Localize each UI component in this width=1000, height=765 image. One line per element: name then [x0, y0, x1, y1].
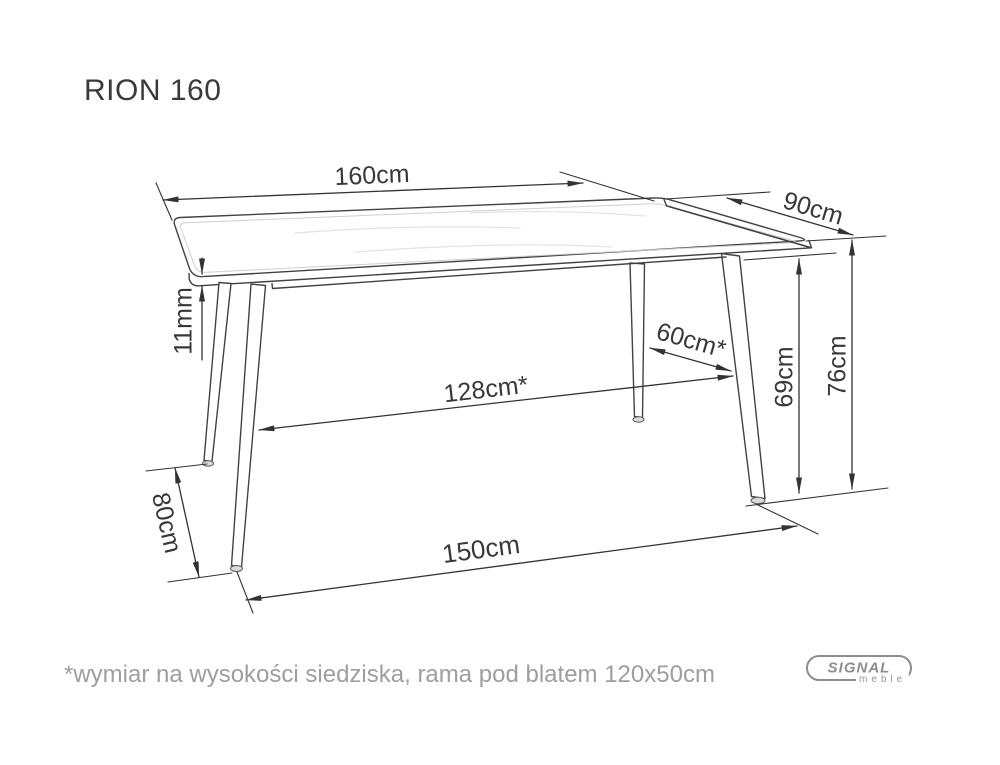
table-leg-back-left [204, 283, 231, 462]
foot-front-left [231, 566, 243, 572]
drawing-title: RION 160 [84, 74, 221, 108]
foot-back-right [633, 417, 644, 422]
foot-back-left [203, 461, 214, 466]
dimension-footnote: *wymiar na wysokości siedziska, rama pod… [64, 661, 715, 689]
table-leg-front-left [232, 284, 266, 567]
dim-line-feet-spacing-length [246, 526, 797, 600]
dim-label-top-length: 160cm [334, 162, 410, 190]
dim-label-top-thickness: 11mm [172, 287, 197, 355]
tabletop-surface [174, 198, 804, 277]
dim-label-height-total: 76cm [826, 335, 851, 396]
dim-label-height-under-frame: 69cm [773, 346, 798, 407]
technical-drawing-page: RION 160 160cm 90cm 76cm 69cm 11mm 60cm*… [0, 0, 1000, 765]
foot-front-right [751, 497, 765, 503]
logo-sub-text: meble [856, 674, 909, 685]
table-leg-back-right [630, 263, 645, 418]
signal-meble-logo: SIGNAL meble [806, 653, 918, 689]
